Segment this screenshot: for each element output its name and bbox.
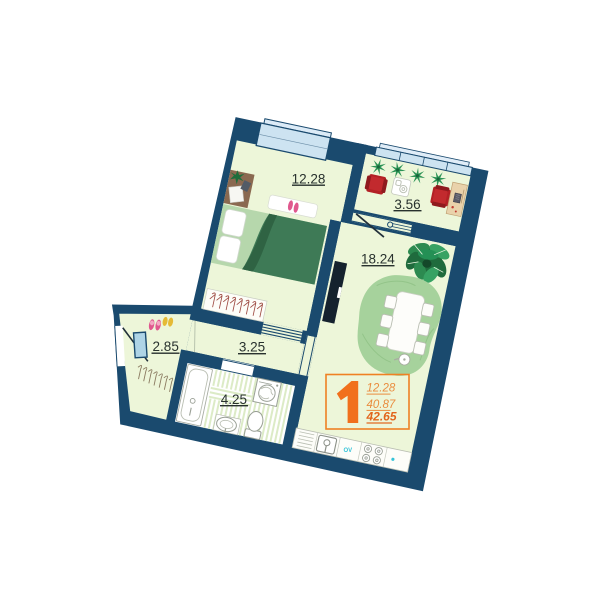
- svg-text:18.24: 18.24: [361, 252, 395, 267]
- svg-text:3.25: 3.25: [239, 340, 265, 355]
- svg-text:12.28: 12.28: [292, 172, 326, 187]
- svg-text:12.28: 12.28: [367, 383, 396, 395]
- svg-text:OV: OV: [343, 448, 352, 454]
- svg-text:42.65: 42.65: [366, 409, 397, 423]
- svg-text:2.85: 2.85: [153, 339, 179, 354]
- svg-text:3.56: 3.56: [394, 197, 420, 212]
- svg-text:4.25: 4.25: [221, 392, 247, 407]
